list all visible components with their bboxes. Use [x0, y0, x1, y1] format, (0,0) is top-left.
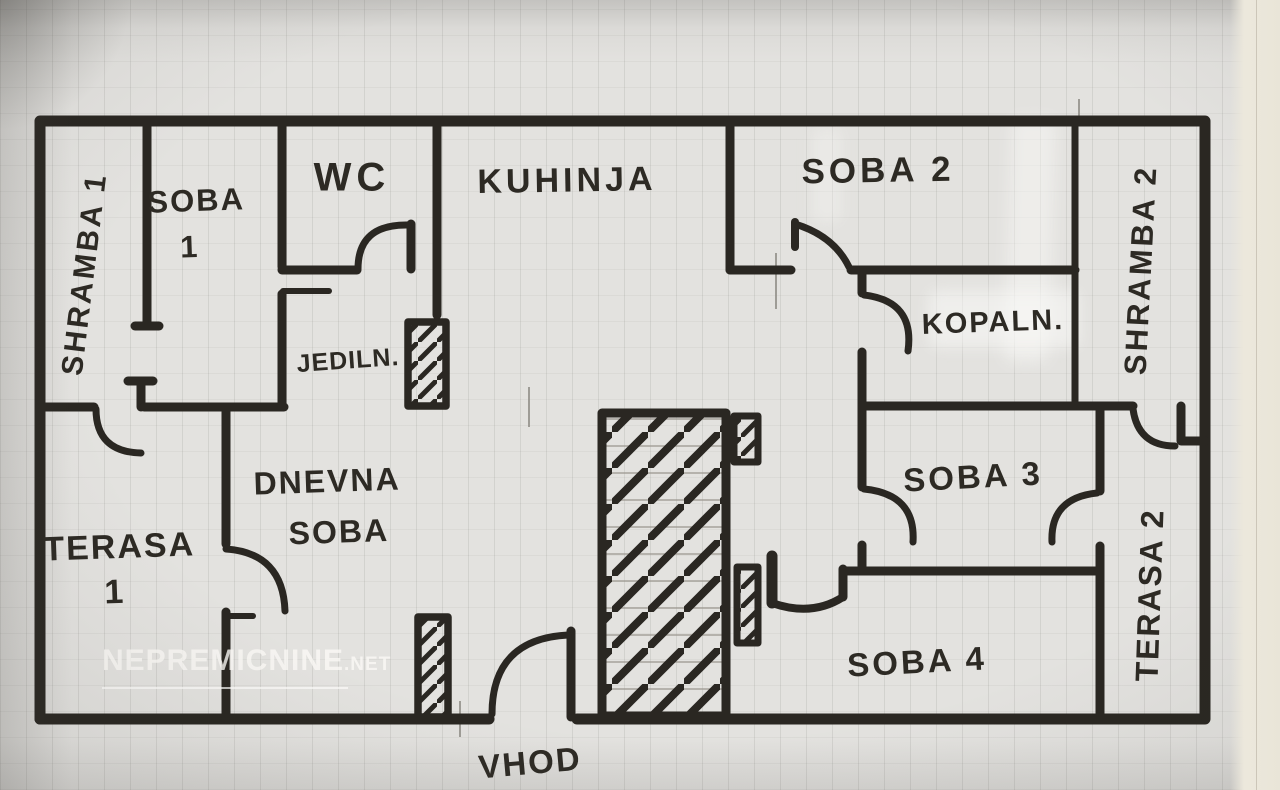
room-label-kuhinja: KUHINJA — [477, 160, 657, 202]
room-label-text: SOBA 3 — [902, 454, 1043, 499]
room-label-text: SOBA — [264, 504, 413, 560]
room-label-soba-3: SOBA 3 — [902, 454, 1043, 499]
room-label-terasa-2: TERASA 2 — [1128, 508, 1171, 682]
room-label-text: SOBA 2 — [801, 150, 955, 193]
room-label-text: TERASA 2 — [1128, 508, 1171, 682]
room-label-text: SOBA — [147, 176, 246, 225]
floorplan-drawing — [0, 0, 1280, 790]
room-label-wc: WC — [314, 156, 391, 201]
room-label-terasa-1: TERASA 1 — [43, 522, 198, 617]
room-label-text: 1 — [38, 568, 191, 618]
room-label-dnevna-soba: DNEVNA SOBA — [253, 453, 404, 560]
room-label-soba-4: SOBA 4 — [846, 639, 987, 684]
room-label-kopalnica: KOPALN. — [921, 304, 1064, 342]
room-label-text: KOPALN. — [921, 304, 1064, 342]
room-label-text: KUHINJA — [477, 160, 657, 202]
room-label-text: TERASA — [43, 522, 196, 572]
room-label-soba-2: SOBA 2 — [801, 150, 955, 193]
stairwell-hatch — [602, 413, 758, 716]
room-label-soba-1: SOBA 1 — [147, 176, 248, 271]
room-label-text: SOBA 4 — [846, 639, 987, 684]
room-label-text: DNEVNA — [253, 453, 402, 509]
wall-hatch-blocks — [408, 322, 448, 717]
room-label-text: 1 — [140, 223, 239, 272]
floorplan-photo: SHRAMBA 1 SOBA 1 WC KUHINJA SOBA 2 SHRAM… — [0, 0, 1280, 790]
room-label-text: WC — [314, 156, 391, 201]
